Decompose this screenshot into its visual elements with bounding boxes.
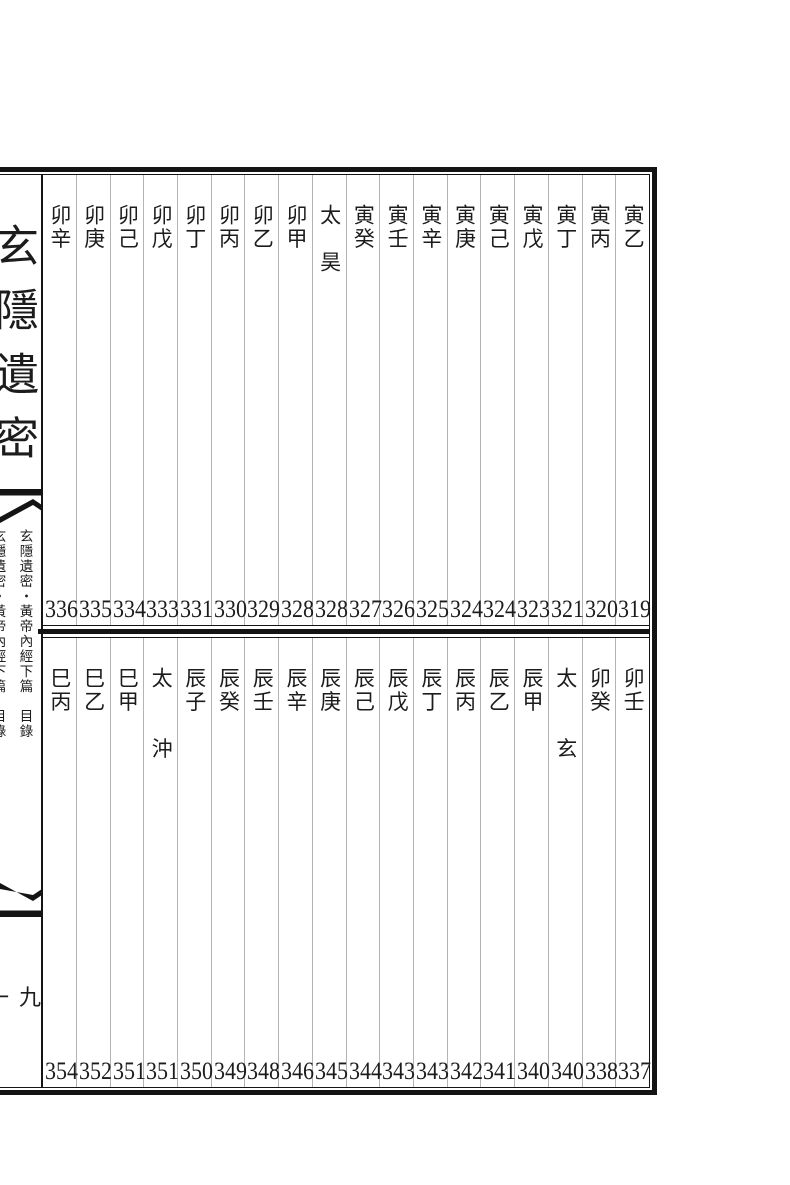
toc-entry-label: 太 玄 [555, 667, 576, 761]
toc-column: 巳甲351 [111, 638, 145, 1087]
toc-entry-label: 卯庚 [83, 204, 104, 251]
toc-column: 寅庚324 [448, 175, 482, 625]
toc-column: 辰乙341 [481, 638, 515, 1087]
toc-column: 寅辛325 [414, 175, 448, 625]
toc-entry-label: 辰乙 [487, 667, 508, 714]
book-page: 玄隱遺密 玄隱遺密・黃帝內經下篇 目錄 玄隱遺密・黃帝內經下篇 目錄 一九 寅乙… [0, 0, 790, 1185]
toc-column: 辰子350 [178, 638, 212, 1087]
toc-entry-page-number: 345 [315, 1059, 344, 1084]
toc-entry-label: 辰壬 [251, 667, 272, 714]
toc-entry-label: 辰辛 [285, 667, 306, 714]
toc-entry-label: 卯壬 [622, 667, 643, 714]
toc-entry-page-number: 342 [450, 1059, 479, 1084]
toc-column: 巳丙354 [43, 638, 77, 1087]
toc-entry-page-number: 326 [382, 597, 411, 622]
toc-column: 寅丙320 [583, 175, 617, 625]
toc-entry-page-number: 321 [551, 597, 580, 622]
toc-column: 卯壬337 [616, 638, 649, 1087]
toc-column: 太 沖351 [144, 638, 178, 1087]
toc-grid: 寅乙319寅丙320寅丁321寅戊323寅己324寅庚324寅辛325寅壬326… [43, 175, 649, 1087]
toc-entry-page-number: 331 [180, 597, 209, 622]
toc-entry-page-number: 328 [315, 597, 344, 622]
toc-entry-page-number: 340 [517, 1059, 546, 1084]
toc-entry-page-number: 320 [585, 597, 614, 622]
toc-column: 卯乙329 [245, 175, 279, 625]
toc-entry-page-number: 337 [618, 1059, 647, 1084]
toc-entry-label: 巳丙 [49, 667, 70, 714]
toc-entry-label: 寅壬 [386, 204, 407, 251]
folio-number: 一九 [0, 987, 43, 1009]
toc-column: 卯丁331 [178, 175, 212, 625]
toc-column: 巳乙352 [77, 638, 111, 1087]
toc-entry-page-number: 330 [214, 597, 243, 622]
toc-entry-page-number: 351 [112, 1059, 141, 1084]
toc-entry-page-number: 346 [281, 1059, 310, 1084]
toc-column: 太 玄340 [549, 638, 583, 1087]
toc-entry-page-number: 333 [146, 597, 175, 622]
fishtail-bottom-icon [0, 881, 42, 917]
toc-entry-label: 卯己 [116, 204, 137, 251]
toc-section-upper: 寅乙319寅丙320寅丁321寅戊323寅己324寅庚324寅辛325寅壬326… [43, 175, 649, 626]
toc-entry-page-number: 327 [348, 597, 377, 622]
toc-column: 卯戊333 [144, 175, 178, 625]
toc-column: 辰癸349 [212, 638, 246, 1087]
toc-entry-label: 寅辛 [420, 204, 441, 251]
running-title: 玄隱遺密・黃帝內經下篇 目錄 [18, 529, 32, 739]
toc-entry-label: 寅己 [487, 204, 508, 251]
toc-entry-label: 辰甲 [521, 667, 542, 714]
toc-column: 辰壬348 [245, 638, 279, 1087]
toc-entry-page-number: 319 [618, 597, 647, 622]
toc-column: 辰辛346 [279, 638, 313, 1087]
toc-entry-page-number: 334 [112, 597, 141, 622]
toc-entry-label: 巳甲 [116, 667, 137, 714]
book-title: 玄隱遺密 [0, 223, 34, 479]
toc-column: 辰己344 [347, 638, 381, 1087]
toc-column: 辰丁343 [414, 638, 448, 1087]
toc-entry-label: 卯丙 [218, 204, 239, 251]
toc-column: 寅丁321 [549, 175, 583, 625]
toc-entry-page-number: 324 [450, 597, 479, 622]
toc-entry-page-number: 350 [180, 1059, 209, 1084]
toc-entry-page-number: 354 [45, 1059, 74, 1084]
toc-entry-page-number: 349 [214, 1059, 243, 1084]
running-title-left-partial: 玄隱遺密・黃帝內經下篇 目錄 [0, 529, 5, 739]
toc-entry-page-number: 343 [416, 1059, 445, 1084]
toc-entry-page-number: 338 [585, 1059, 614, 1084]
toc-column: 寅癸327 [347, 175, 381, 625]
page-frame: 玄隱遺密 玄隱遺密・黃帝內經下篇 目錄 玄隱遺密・黃帝內經下篇 目錄 一九 寅乙… [0, 167, 657, 1095]
toc-entry-label: 寅庚 [454, 204, 475, 251]
toc-entry-label: 卯甲 [285, 204, 306, 251]
toc-entry-label: 辰丁 [420, 667, 441, 714]
toc-entry-label: 辰丙 [454, 667, 475, 714]
toc-entry-label: 辰己 [352, 667, 373, 714]
toc-column: 卯甲328 [279, 175, 313, 625]
toc-entry-label: 寅戊 [521, 204, 542, 251]
toc-section-lower: 卯壬337卯癸338太 玄340辰甲340辰乙341辰丙342辰丁343辰戊34… [43, 637, 649, 1087]
toc-entry-label: 太 沖 [150, 667, 171, 761]
fishtail-top-icon [0, 489, 42, 525]
page-frame-inner-border: 玄隱遺密 玄隱遺密・黃帝內經下篇 目錄 玄隱遺密・黃帝內經下篇 目錄 一九 寅乙… [0, 174, 650, 1088]
toc-entry-label: 卯丁 [184, 204, 205, 251]
toc-entry-label: 太 昊 [319, 204, 340, 275]
toc-entry-label: 卯乙 [251, 204, 272, 251]
toc-entry-label: 卯辛 [49, 204, 70, 251]
toc-entry-label: 卯戊 [150, 204, 171, 251]
toc-entry-label: 寅丁 [555, 204, 576, 251]
toc-column: 寅己324 [481, 175, 515, 625]
toc-column: 寅乙319 [616, 175, 649, 625]
toc-entry-page-number: 352 [79, 1059, 108, 1084]
spine-column: 玄隱遺密 玄隱遺密・黃帝內經下篇 目錄 玄隱遺密・黃帝內經下篇 目錄 一九 [0, 175, 43, 1087]
toc-column: 辰丙342 [448, 638, 482, 1087]
toc-entry-label: 寅乙 [622, 204, 643, 251]
toc-column: 辰甲340 [515, 638, 549, 1087]
toc-entry-label: 寅丙 [588, 204, 609, 251]
toc-column: 卯丙330 [212, 175, 246, 625]
toc-entry-label: 巳乙 [83, 667, 104, 714]
toc-entry-page-number: 329 [247, 597, 276, 622]
toc-entry-page-number: 351 [146, 1059, 175, 1084]
toc-entry-label: 辰子 [184, 667, 205, 714]
toc-entry-page-number: 344 [348, 1059, 377, 1084]
toc-entry-page-number: 340 [551, 1059, 580, 1084]
toc-entry-page-number: 325 [416, 597, 445, 622]
toc-column: 卯癸338 [583, 638, 617, 1087]
toc-column: 辰戊343 [380, 638, 414, 1087]
toc-column: 辰庚345 [313, 638, 347, 1087]
toc-entry-page-number: 328 [281, 597, 310, 622]
toc-column: 太 昊328 [313, 175, 347, 625]
toc-column: 寅壬326 [380, 175, 414, 625]
toc-entry-page-number: 341 [483, 1059, 512, 1084]
toc-entry-label: 辰癸 [218, 667, 239, 714]
toc-entry-page-number: 324 [483, 597, 512, 622]
section-divider [38, 629, 650, 634]
toc-entry-label: 辰庚 [319, 667, 340, 714]
toc-entry-page-number: 343 [382, 1059, 411, 1084]
toc-entry-page-number: 323 [517, 597, 546, 622]
toc-entry-page-number: 336 [45, 597, 74, 622]
toc-entry-label: 寅癸 [352, 204, 373, 251]
toc-entry-page-number: 335 [79, 597, 108, 622]
toc-column: 卯庚335 [77, 175, 111, 625]
toc-entry-label: 卯癸 [588, 667, 609, 714]
toc-column: 卯辛336 [43, 175, 77, 625]
toc-column: 卯己334 [111, 175, 145, 625]
toc-column: 寅戊323 [515, 175, 549, 625]
toc-entry-label: 辰戊 [386, 667, 407, 714]
toc-entry-page-number: 348 [247, 1059, 276, 1084]
